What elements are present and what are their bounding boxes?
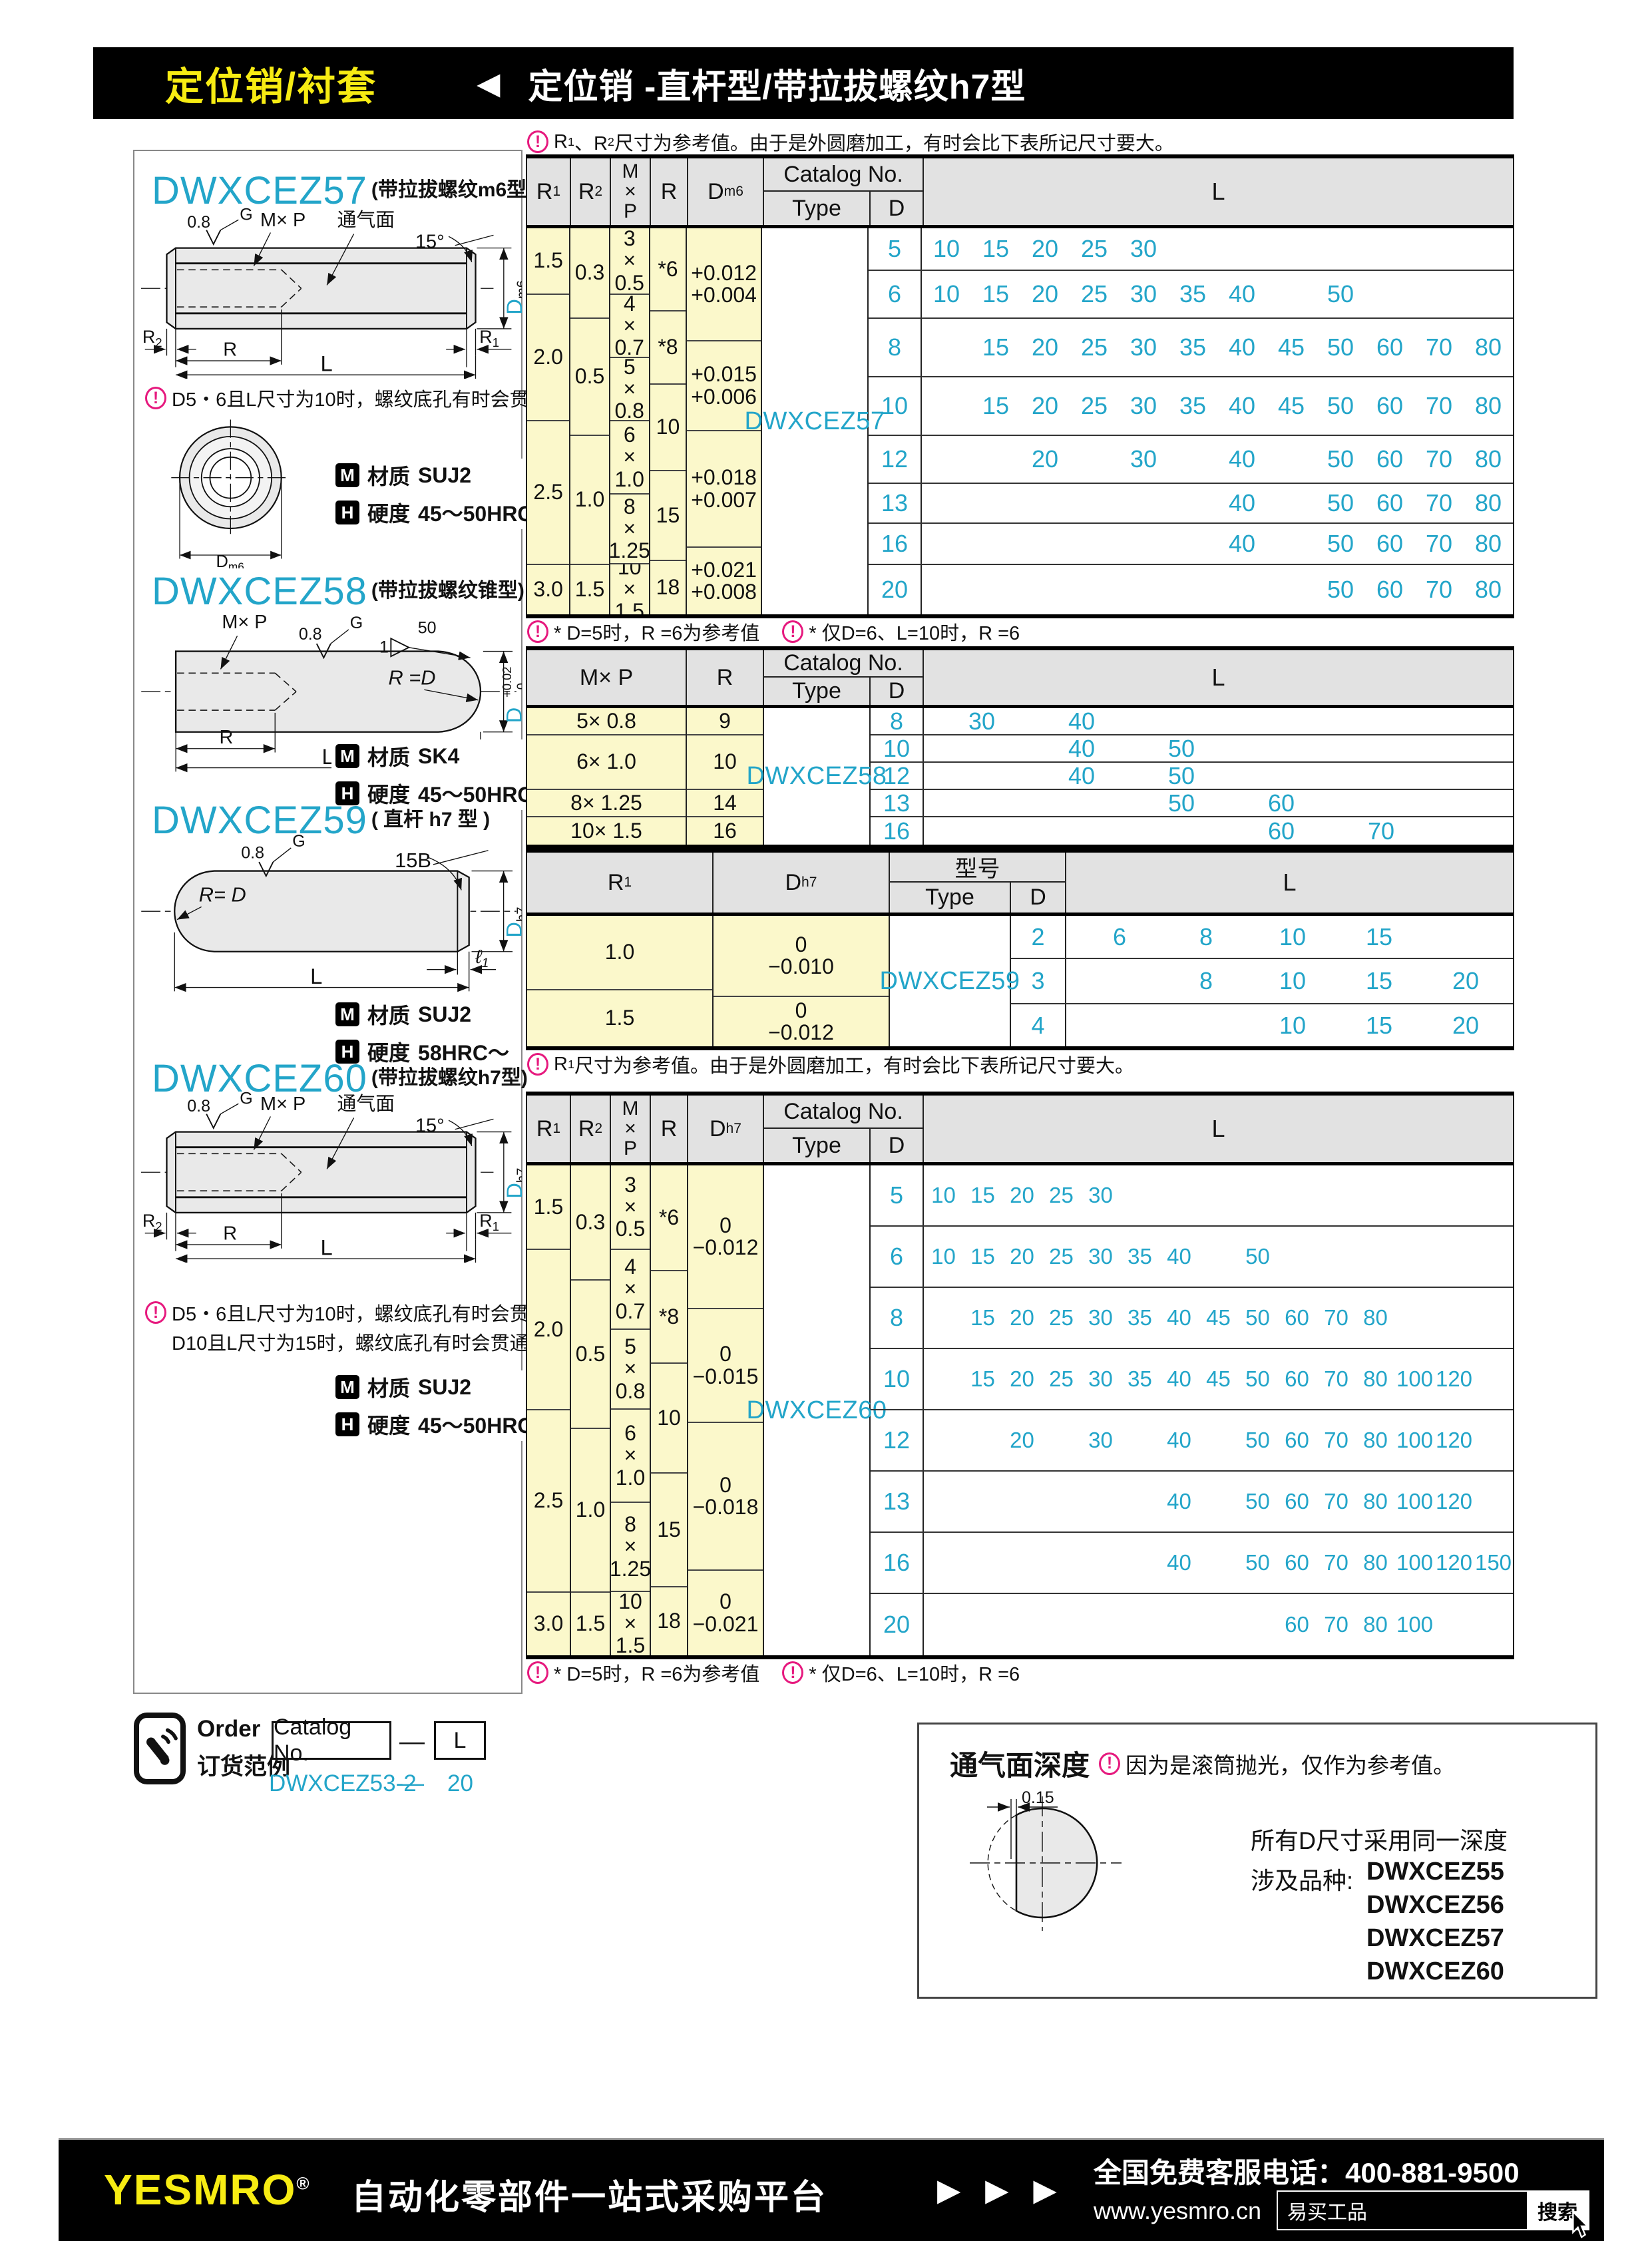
type-cell: DWXCEZ58 <box>764 708 871 845</box>
spec-segment: 1.5 <box>570 565 608 614</box>
svg-text:50: 50 <box>418 619 437 638</box>
col-header-l: L <box>924 650 1513 705</box>
spec-segment: 9 <box>687 708 763 735</box>
l-value: 70 <box>1414 392 1464 420</box>
l-value: 100 <box>1395 1366 1434 1392</box>
type-cell: DWXCEZ60 <box>764 1165 871 1655</box>
l-value: 45 <box>1199 1366 1238 1392</box>
l-value: 35 <box>1168 333 1217 361</box>
l-value: 8 <box>1163 967 1249 995</box>
spec-segment: 5 × 0.8 <box>610 358 649 421</box>
l-value: 40 <box>1032 735 1132 761</box>
l-value: 60 <box>1365 392 1414 420</box>
footer-slogan: 自动化零部件一站式采购平台 <box>351 2169 827 2219</box>
spec-segment: 1.0 <box>570 436 608 565</box>
l-value: 25 <box>1070 392 1119 420</box>
l-value: 40 <box>1217 445 1267 473</box>
col-mxp: 3 × 0.54 × 0.75 × 0.86 × 1.08 × 1.2510 ×… <box>610 228 650 614</box>
product-title-58: DWXCEZ58 (带拉拔螺纹锥型) <box>152 569 524 614</box>
svg-text:M× P: M× P <box>222 612 267 633</box>
col-header-mxp: M× P <box>527 650 687 705</box>
l-value: 30 <box>1081 1366 1120 1392</box>
l-value: 50 <box>1238 1244 1277 1269</box>
l-value: 20 <box>1002 1305 1042 1330</box>
table-row: 164050607080100120150 <box>871 1533 1513 1594</box>
table-row: 81520253035404550607080 <box>869 319 1513 377</box>
registered-mark: ® <box>296 2174 310 2194</box>
l-value: 100 <box>1395 1550 1434 1575</box>
material-icon: M <box>335 744 359 768</box>
spec-segment: 4 × 0.7 <box>611 1250 650 1330</box>
l-value: 45 <box>1267 392 1316 420</box>
l-value: 70 <box>1317 1612 1356 1637</box>
vent-models-label: 涉及品种: <box>1251 1862 1353 1896</box>
spec-segment: 1.5 <box>527 990 712 1046</box>
l-value: 80 <box>1356 1612 1395 1637</box>
pin-side-diagram-57: 0.8 G M× P 通气面 15° Dm6 R2 R1 R L <box>137 207 522 379</box>
spec-segment: 18 <box>651 1587 687 1655</box>
l-value: 25 <box>1042 1183 1081 1208</box>
spec-segment: 2.0 <box>527 295 569 421</box>
spec-segment: 4 × 0.7 <box>610 295 649 358</box>
l-value: 70 <box>1317 1550 1356 1575</box>
l-value: 40 <box>1217 392 1267 420</box>
l-value: 20 <box>1002 1366 1042 1392</box>
table-row: 83040 <box>871 708 1513 735</box>
spec-segment: 2.0 <box>527 1250 570 1410</box>
col-header-r1: R1 <box>527 1096 571 1162</box>
spec-segment: 1.5 <box>527 228 569 295</box>
l-value: 15 <box>963 1366 1002 1392</box>
l-value: 60 <box>1277 1489 1317 1514</box>
material-icon: M <box>335 463 359 487</box>
l-value: 40 <box>1032 763 1132 789</box>
svg-text:R1: R1 <box>479 1211 499 1233</box>
vent-model-3: DWXCEZ57 <box>1366 1924 1504 1953</box>
table-row: 134050607080100120 <box>871 1472 1513 1533</box>
col-r2: 0.30.51.01.5 <box>571 1165 611 1655</box>
spec-segment: 0 −0.021 <box>688 1571 763 1655</box>
l-value: 20 <box>1020 280 1070 308</box>
l-value: 80 <box>1356 1489 1395 1514</box>
spec-segment: 1.5 <box>571 1593 610 1655</box>
material-block-57: M材质SUJ2 H硬度45～50HRC <box>331 459 537 529</box>
l-value: 10 <box>924 1183 963 1208</box>
l-value: 50 <box>1238 1366 1277 1392</box>
order-dash: — <box>399 1728 425 1756</box>
vent-title: 通气面深度 <box>950 1743 1090 1784</box>
spec-segment: 3 × 0.5 <box>611 1165 650 1250</box>
l-value: 70 <box>1331 817 1431 845</box>
col-header-catalog: Catalog No. TypeD <box>764 1096 924 1162</box>
table-row: 38101520 <box>1011 959 1513 1004</box>
spec-segment: 0.5 <box>570 319 608 436</box>
spec-segment: 10 × 1.5 <box>611 1592 650 1655</box>
l-value: 15 <box>963 1183 1002 1208</box>
col-header-l: L <box>1066 853 1513 913</box>
l-box: L <box>434 1721 486 1760</box>
l-value: 70 <box>1414 445 1464 473</box>
l-value: 6 <box>1076 923 1163 951</box>
order-example-l: 20 <box>447 1770 473 1797</box>
spec-segment: 3.0 <box>527 565 569 614</box>
l-value: 25 <box>1070 235 1119 263</box>
svg-text:G: G <box>240 207 252 224</box>
website-url: www.yesmro.cn <box>1094 2197 1261 2225</box>
l-value: 25 <box>1070 333 1119 361</box>
table-row: 104050 <box>871 735 1513 763</box>
l-value: 100 <box>1395 1489 1434 1514</box>
spec-segment: 3.0 <box>527 1593 570 1655</box>
table-row: 61015202530354050 <box>871 1227 1513 1288</box>
col-header-catalog: Catalog No. TypeD <box>764 158 924 225</box>
l-value: 60 <box>1277 1550 1317 1575</box>
l-value: 20 <box>1020 445 1070 473</box>
svg-text:R= D: R= D <box>199 883 246 907</box>
order-label-en: Order <box>197 1716 260 1742</box>
svg-text:0.8: 0.8 <box>187 1097 210 1116</box>
l-value: 80 <box>1464 530 1513 558</box>
l-value: 80 <box>1356 1550 1395 1575</box>
svg-text:G: G <box>350 614 363 632</box>
l-value: 70 <box>1317 1428 1356 1453</box>
search-input[interactable]: 易买工品 <box>1278 2192 1527 2229</box>
l-value: 60 <box>1277 1305 1317 1330</box>
l-value: 50 <box>1316 489 1365 517</box>
l-value: 60 <box>1231 790 1331 816</box>
l-value: 60 <box>1365 333 1414 361</box>
spec-segment: +0.018 +0.007 <box>687 431 761 548</box>
table-row: 81520253035404550607080 <box>871 1288 1513 1349</box>
note-57: ! D5・6且L尺寸为10时，螺纹底孔有时会贯通。 <box>145 384 568 412</box>
svg-text:D+0.020: D+0.020 <box>500 667 522 723</box>
col-mxp: 3 × 0.54 × 0.75 × 0.86 × 1.08 × 1.2510 ×… <box>611 1165 651 1655</box>
l-value: 8 <box>1163 923 1249 951</box>
service-phone: 全国免费客服电话：400-881-9500 <box>1094 2150 1520 2191</box>
svg-text:M× P: M× P <box>260 1094 306 1115</box>
l-value: 30 <box>1081 1183 1120 1208</box>
svg-text:R2: R2 <box>142 327 162 349</box>
d-l-rows: 51015202530 61015202530354050 8152025303… <box>871 1165 1513 1655</box>
l-value: 70 <box>1317 1305 1356 1330</box>
l-value: 20 <box>1002 1183 1042 1208</box>
l-value: 60 <box>1365 445 1414 473</box>
col-header-catalog: Catalog No. TypeD <box>764 650 924 705</box>
search-box: 易买工品 搜索 <box>1277 2190 1589 2230</box>
col-header-r2: R2 <box>571 158 611 225</box>
note-above-table57: ! R1、R2尺寸为参考值。由于是外圆磨加工，有时会比下表所记尺寸要大。 <box>527 128 1174 156</box>
footer-bar: YESMRO® 自动化零部件一站式采购平台 ▶ ▶ ▶ 全国免费客服电话：400… <box>59 2138 1604 2241</box>
vent-note: 因为是滚筒抛光，仅作为参考值。 <box>1126 1748 1455 1780</box>
col-header-mxp: M × P <box>611 1096 651 1162</box>
l-value: 40 <box>1159 1489 1199 1514</box>
svg-text:R: R <box>223 1223 237 1244</box>
l-value: 40 <box>1217 280 1267 308</box>
l-value: 20 <box>1422 1012 1509 1040</box>
col-dh7-tolerance: 0 −0.0100 −0.012 <box>714 916 890 1046</box>
l-value: 25 <box>1070 280 1119 308</box>
note-60-line2: D10且L尺寸为15时，螺纹底孔有时会贯通。 <box>172 1328 548 1356</box>
l-value: 50 <box>1238 1428 1277 1453</box>
table-row: 134050607080 <box>869 484 1513 524</box>
col-header-mxp: M × P <box>611 158 651 225</box>
l-value: 30 <box>1081 1428 1120 1453</box>
l-value: 30 <box>1119 445 1168 473</box>
col-header-dh7: Dh7 <box>714 853 890 913</box>
spec-segment: 16 <box>687 817 763 845</box>
table-row: 51015202530 <box>869 228 1513 271</box>
type-cell: DWXCEZ57 <box>762 228 869 614</box>
l-value: 30 <box>1119 392 1168 420</box>
table-row: 166070 <box>871 817 1513 845</box>
col-r1: 1.52.02.53.0 <box>527 1165 571 1655</box>
col-mxp: 5× 0.86× 1.08× 1.2510× 1.5 <box>527 708 687 845</box>
l-value: 40 <box>1032 708 1132 734</box>
l-value: 70 <box>1414 576 1464 604</box>
banner-category: 定位销/衬套 <box>165 55 377 111</box>
l-value: 50 <box>1316 445 1365 473</box>
warning-icon: ! <box>145 1301 166 1324</box>
search-button[interactable]: 搜索 <box>1527 2192 1588 2229</box>
table-row: 61015202530354050 <box>869 271 1513 319</box>
svg-text:L: L <box>310 964 322 988</box>
l-value: 35 <box>1168 392 1217 420</box>
l-value: 10 <box>924 1244 963 1269</box>
col-header-l: L <box>924 1096 1513 1162</box>
col-header-r2: R2 <box>571 1096 611 1162</box>
table-row: 2050607080 <box>869 565 1513 614</box>
left-arrow-icon: ◀ <box>477 65 500 101</box>
material-block-60: M材质SUJ2 H硬度45～50HRC <box>331 1370 537 1441</box>
col-header-model: 型号 TypeD <box>890 853 1066 913</box>
col-header-r1: R1 <box>527 853 714 913</box>
type-cell: DWXCEZ59 <box>890 916 1011 1046</box>
table-dwxcez57: R1 R2 M × P R Dm6 Catalog No. TypeD L 1.… <box>526 154 1514 618</box>
l-value: 25 <box>1042 1305 1081 1330</box>
l-value: 40 <box>1159 1305 1199 1330</box>
spec-segment: 15 <box>651 1474 687 1587</box>
l-value: 60 <box>1365 576 1414 604</box>
l-value: 10 <box>1249 923 1336 951</box>
note-60-line1: ! D5・6且L尺寸为10时，螺纹底孔有时会贯通。 <box>145 1299 568 1326</box>
spec-segment: 0 −0.012 <box>688 1165 763 1309</box>
col-header-dm6: Dm6 <box>688 158 764 225</box>
svg-text:15°: 15° <box>415 1116 445 1137</box>
l-value: 80 <box>1464 333 1513 361</box>
svg-text:1: 1 <box>379 638 389 656</box>
spec-segment: 10 × 1.5 <box>610 564 649 614</box>
l-value: 15 <box>963 1305 1002 1330</box>
page-title: 定位销 -直杆型/带拉拔螺纹h7型 <box>528 59 1026 108</box>
l-value: 80 <box>1356 1428 1395 1453</box>
l-value: 120 <box>1434 1428 1474 1453</box>
table-row: 1220304050607080 <box>869 436 1513 484</box>
note-below-table60: !* D=5时，R =6为参考值 !* 仅D=6、L=10时，R =6 <box>527 1659 1020 1687</box>
l-value: 35 <box>1120 1244 1159 1269</box>
col-header-r: R <box>651 1096 688 1162</box>
svg-text:R: R <box>220 727 234 748</box>
l-value: 30 <box>1119 280 1168 308</box>
l-value: 40 <box>1217 489 1267 517</box>
l-value: 10 <box>1249 1012 1336 1040</box>
spec-segment: +0.012 +0.004 <box>687 228 761 341</box>
table-dwxcez58: M× P R Catalog No. TypeD L 5× 0.86× 1.08… <box>526 646 1514 849</box>
l-value: 70 <box>1414 489 1464 517</box>
spec-segment: 3 × 0.5 <box>610 228 649 295</box>
col-r: *6*8101518 <box>650 228 687 614</box>
l-value: 45 <box>1199 1305 1238 1330</box>
spec-segment: 1.5 <box>527 1165 570 1250</box>
catalog-no-box: Catalog No. <box>272 1721 391 1760</box>
spec-segment: 10 <box>650 385 686 471</box>
svg-text:15°: 15° <box>415 232 445 253</box>
spec-segment: 6 × 1.0 <box>610 421 649 495</box>
spec-segment: 8 × 1.25 <box>610 495 649 564</box>
l-value: 20 <box>1002 1244 1042 1269</box>
table-dwxcez60: R1 R2 M × P R Dh7 Catalog No. TypeD L 1.… <box>526 1092 1514 1659</box>
l-value: 100 <box>1395 1612 1434 1637</box>
l-value: 15 <box>971 392 1020 420</box>
l-value: 20 <box>1020 333 1070 361</box>
note-below-table57: !* D=5时，R =6为参考值 !* 仅D=6、L=10时，R =6 <box>527 618 1020 646</box>
spec-segment: *8 <box>650 311 686 385</box>
l-value: 80 <box>1464 445 1513 473</box>
table-row: 101520253035404550607080100120 <box>871 1349 1513 1410</box>
l-value: 15 <box>971 333 1020 361</box>
spec-segment: 1.0 <box>527 916 712 990</box>
l-value: 15 <box>1336 1012 1422 1040</box>
l-value: 35 <box>1168 280 1217 308</box>
spec-segment: 1.0 <box>571 1429 610 1593</box>
hardness-icon: H <box>335 1412 359 1436</box>
l-value: 60 <box>1365 489 1414 517</box>
material-icon: M <box>335 1002 359 1026</box>
warning-icon: ! <box>145 387 166 409</box>
l-value: 50 <box>1316 392 1365 420</box>
svg-text:R =D: R =D <box>388 666 435 690</box>
spec-segment: 5× 0.8 <box>527 708 686 735</box>
pin-front-diagram-57: Dm6 <box>166 416 300 568</box>
spec-segment: 10× 1.5 <box>527 817 686 845</box>
svg-text:L: L <box>321 351 333 375</box>
l-value: 80 <box>1356 1305 1395 1330</box>
svg-text:L: L <box>321 1235 333 1259</box>
l-value: 50 <box>1132 735 1231 761</box>
table-row: 51015202530 <box>871 1165 1513 1227</box>
l-value: 40 <box>1159 1550 1199 1575</box>
svg-text:Dm6: Dm6 <box>502 280 522 315</box>
l-value: 30 <box>1119 235 1168 263</box>
spec-segment: 0.3 <box>570 228 608 319</box>
l-value: 50 <box>1132 763 1231 789</box>
spec-segment: 8 × 1.25 <box>611 1503 650 1592</box>
spec-segment: 15 <box>650 471 686 561</box>
pin-side-diagram-59: R= D 0.8 G 15B Dh7 ℓ1 L <box>137 830 522 998</box>
order-example-dash: — <box>401 1770 424 1797</box>
l-value: 60 <box>1277 1428 1317 1453</box>
spec-segment: 0.3 <box>571 1165 610 1281</box>
l-value: 35 <box>1120 1305 1159 1330</box>
l-value: 40 <box>1159 1244 1199 1269</box>
d-l-rows: 83040 104050 124050 135060 166070 <box>871 708 1513 845</box>
l-value: 40 <box>1159 1366 1199 1392</box>
material-icon: M <box>335 1375 359 1399</box>
l-value: 70 <box>1414 530 1464 558</box>
l-value: 60 <box>1277 1366 1317 1392</box>
hardness-icon: H <box>335 501 359 524</box>
l-value: 10 <box>1249 967 1336 995</box>
l-value: 10 <box>922 280 971 308</box>
table-row: 101520253035404550607080 <box>869 377 1513 436</box>
table-dwxcez59: R1 Dh7 型号 TypeD L 1.01.5 0 −0.0100 −0.01… <box>526 849 1514 1050</box>
l-value: 120 <box>1434 1489 1474 1514</box>
svg-text:通气面: 通气面 <box>337 1094 395 1115</box>
l-value: 70 <box>1414 333 1464 361</box>
table-row: 20607080100 <box>871 1594 1513 1655</box>
spec-segment: 2.5 <box>527 1410 570 1593</box>
table-row: 1220304050607080100120 <box>871 1410 1513 1472</box>
spec-segment: 0 −0.018 <box>688 1423 763 1571</box>
l-value: 30 <box>1119 333 1168 361</box>
spec-segment: 6 × 1.0 <box>611 1410 650 1503</box>
l-value: 50 <box>1316 576 1365 604</box>
order-phone-icon <box>134 1713 186 1784</box>
table-row: 4101520 <box>1011 1004 1513 1046</box>
col-r1: 1.01.5 <box>527 916 714 1046</box>
svg-text:ℓ1: ℓ1 <box>475 946 489 970</box>
note-above-table60: ! R1尺寸为参考值。由于是外圆磨加工，有时会比下表所记尺寸要大。 <box>527 1050 1134 1078</box>
l-value: 70 <box>1317 1366 1356 1392</box>
svg-text:G: G <box>292 832 305 851</box>
l-value: 25 <box>1042 1366 1081 1392</box>
col-r2: 0.30.51.01.5 <box>570 228 610 614</box>
l-value: 50 <box>1238 1305 1277 1330</box>
spec-segment: 5 × 0.8 <box>611 1330 650 1410</box>
pin-side-diagram-60: 0.8 G M× P 通气面 15° Dh7 R2 R1 R L <box>137 1091 522 1263</box>
l-value: 50 <box>1238 1550 1277 1575</box>
l-value: 60 <box>1277 1612 1317 1637</box>
l-value: 70 <box>1317 1489 1356 1514</box>
product-title-57: DWXCEZ57 (带拉拔螺纹m6型) <box>152 168 533 213</box>
l-value: 25 <box>1042 1244 1081 1269</box>
spec-segment: 10 <box>651 1364 687 1474</box>
spec-segment: 6× 1.0 <box>527 735 686 790</box>
l-value: 30 <box>1081 1244 1120 1269</box>
l-value: 60 <box>1365 530 1414 558</box>
svg-text:G: G <box>240 1091 252 1108</box>
spec-segment: 0 −0.012 <box>714 997 889 1046</box>
vent-model-2: DWXCEZ56 <box>1366 1891 1504 1920</box>
page-banner: 定位销/衬套 ◀ 定位销 -直杆型/带拉拔螺纹h7型 <box>93 47 1514 119</box>
spec-segment: 8× 1.25 <box>527 790 686 817</box>
product-diagrams-panel: DWXCEZ57 (带拉拔螺纹m6型) 0.8 G M× P 通气面 15° D… <box>133 150 522 1694</box>
l-value: 15 <box>971 235 1020 263</box>
l-value: 35 <box>1120 1366 1159 1392</box>
l-value: 40 <box>1217 530 1267 558</box>
col-header-dh7: Dh7 <box>688 1096 764 1162</box>
l-value: 120 <box>1434 1366 1474 1392</box>
table-row: 124050 <box>871 763 1513 790</box>
l-value: 80 <box>1464 576 1513 604</box>
spec-segment: 18 <box>650 561 686 614</box>
l-value: 30 <box>932 708 1032 734</box>
l-value: 20 <box>1002 1428 1042 1453</box>
svg-text:Dh7: Dh7 <box>502 1168 522 1199</box>
l-value: 150 <box>1474 1550 1513 1575</box>
vent-depth-box: 通气面深度 ! 因为是滚筒抛光，仅作为参考值。 0.15 所有D尺寸采用同一深度… <box>917 1723 1597 1999</box>
l-value: 20 <box>1422 967 1509 995</box>
svg-text:15B: 15B <box>395 849 431 872</box>
